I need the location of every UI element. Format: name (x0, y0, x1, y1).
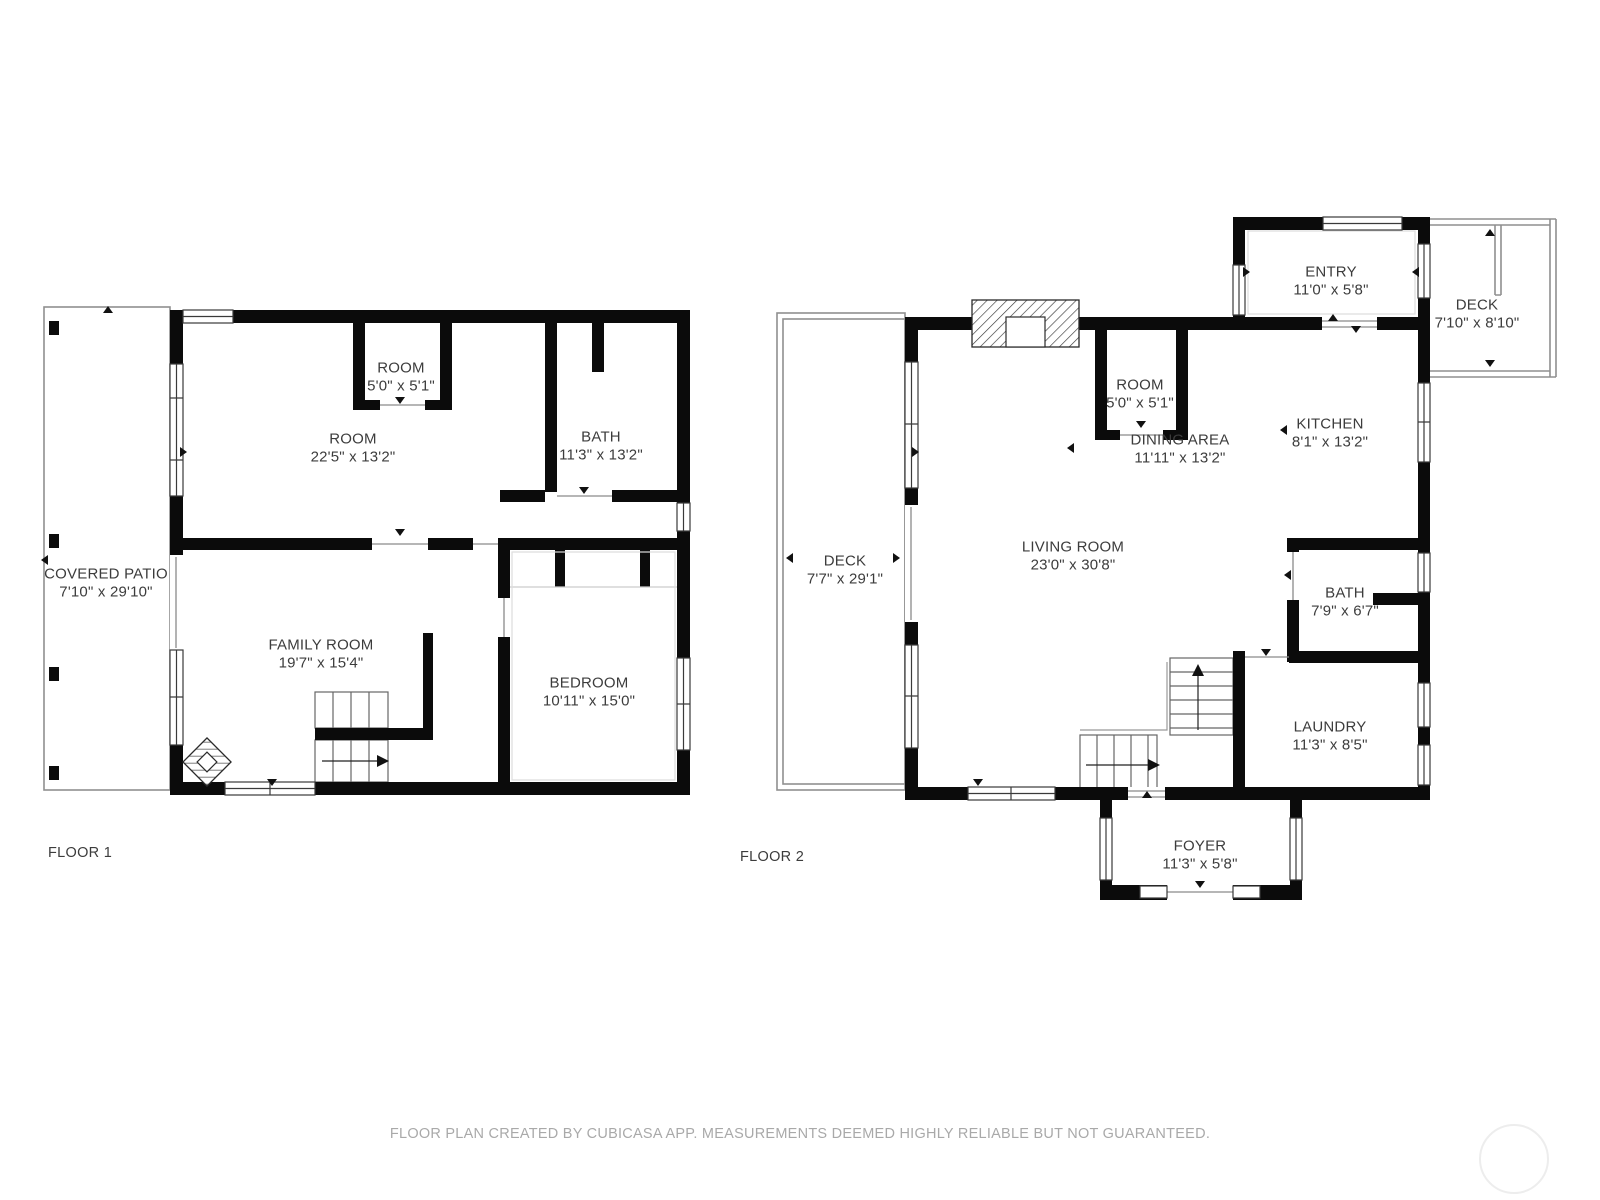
footer-disclaimer: FLOOR PLAN CREATED BY CUBICASA APP. MEAS… (390, 1126, 1210, 1142)
room-label-laundry: LAUNDRY 11'3" x 8'5" (1292, 719, 1367, 754)
floor2-stairs-up-arrow (1192, 664, 1204, 676)
room-label-room-large: ROOM 22'5" x 13'2" (311, 431, 396, 466)
room-label-foyer: FOYER 11'3" x 5'8" (1162, 838, 1237, 873)
floor1-title: FLOOR 1 (48, 845, 112, 861)
room-label-dining-area: DINING AREA 11'11" x 13'2" (1131, 432, 1230, 467)
floor1-covered-patio-outline (44, 307, 170, 790)
watermark-circle-icon (1479, 1124, 1549, 1194)
floor2-title: FLOOR 2 (740, 849, 804, 865)
floor-plan-page: COVERED PATIO 7'10" x 29'10" ROOM 22'5" … (0, 0, 1600, 1200)
room-label-room-floor2: ROOM 5'0" x 5'1" (1106, 377, 1174, 412)
floor1-fireplace-icon (183, 738, 231, 786)
room-label-room-small: ROOM 5'0" x 5'1" (367, 360, 435, 395)
floor1-closet-lines (510, 552, 677, 780)
room-label-covered-patio: COVERED PATIO 7'10" x 29'10" (44, 566, 168, 601)
room-label-family-room: FAMILY ROOM 19'7" x 15'4" (269, 637, 374, 672)
floor1-patio-posts (49, 321, 59, 780)
floor1-stairs-arrow (377, 755, 389, 767)
room-label-bath-floor1: BATH 11'3" x 13'2" (559, 429, 643, 464)
room-label-bedroom: BEDROOM 10'11" x 15'0" (543, 675, 635, 710)
room-label-entry: ENTRY 11'0" x 5'8" (1293, 264, 1368, 299)
floor2-deck-side-outline (777, 313, 905, 790)
floor2-fireplace-icon (972, 300, 1079, 347)
floor2-stairs-right-arrow (1148, 759, 1160, 771)
room-label-living-room: LIVING ROOM 23'0" x 30'8" (1022, 539, 1124, 574)
room-label-bath-floor2: BATH 7'9" x 6'7" (1311, 585, 1379, 620)
room-label-deck-side: DECK 7'7" x 29'1" (807, 553, 883, 588)
room-label-deck-upper: DECK 7'10" x 8'10" (1435, 297, 1520, 332)
floor2-stairs-icon (1080, 658, 1233, 792)
room-label-kitchen: KITCHEN 8'1" x 13'2" (1292, 416, 1368, 451)
